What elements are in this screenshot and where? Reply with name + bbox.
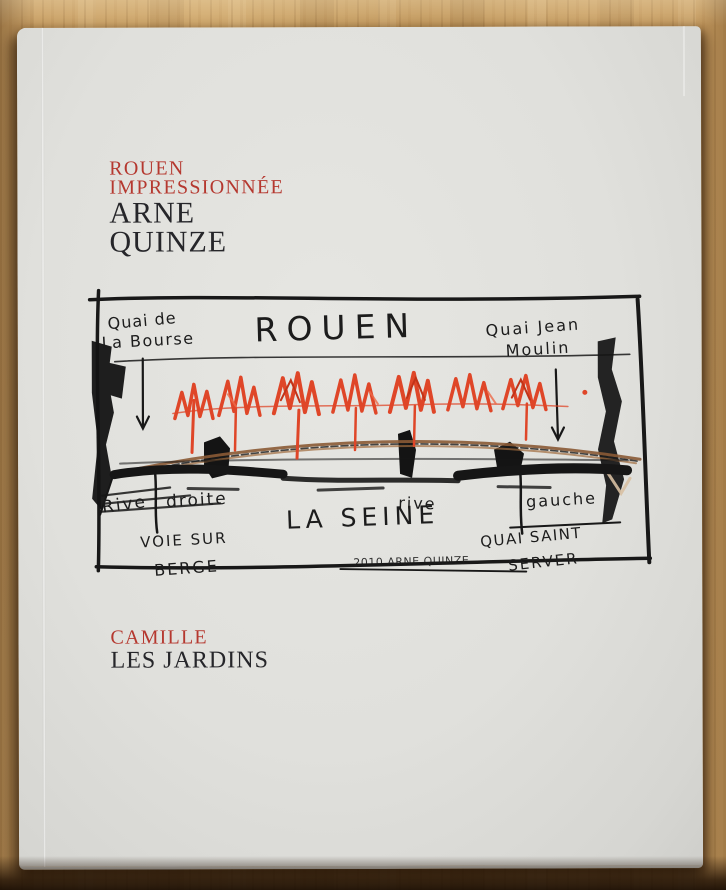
photo-of-book-on-table: ROUEN IMPRESSIONNÉE ARNE QUINZE bbox=[0, 0, 726, 890]
label-quai-saint: QUAI SAINT bbox=[479, 524, 582, 551]
ink-blot-right bbox=[598, 337, 624, 523]
table-shadow bbox=[0, 856, 726, 890]
book-cover: ROUEN IMPRESSIONNÉE ARNE QUINZE bbox=[17, 26, 703, 870]
sketch-title-rouen: ROUEN bbox=[254, 306, 419, 350]
label-rive-droite-a: Rive bbox=[101, 492, 148, 517]
label-rive-gauche-a: rive bbox=[398, 493, 437, 513]
spine-fold-line bbox=[41, 28, 46, 867]
label-berge: BERGE bbox=[154, 556, 220, 580]
corner-fold-line bbox=[683, 26, 685, 96]
label-rive-gauche-b: gauche bbox=[526, 488, 598, 511]
cover-footer-line1: CAMILLE bbox=[110, 627, 268, 648]
seine-sketch-drawing: ROUEN Quai de La Bourse Quai Jean Moulin… bbox=[78, 281, 679, 613]
artist-signature: 2010 ARNE QUINZE bbox=[353, 554, 469, 569]
cover-author-line2: QUINZE bbox=[109, 229, 284, 255]
label-quai-moulin-line1: Quai Jean bbox=[485, 314, 581, 340]
cover-title-block: ROUEN IMPRESSIONNÉE ARNE QUINZE bbox=[109, 159, 284, 255]
down-arrow-left bbox=[137, 359, 149, 429]
down-arrow-right bbox=[552, 369, 564, 439]
label-quai-moulin-line2: Moulin bbox=[505, 338, 571, 361]
cover-footer-line2: LES JARDINS bbox=[111, 648, 269, 673]
cover-footer-block: CAMILLE LES JARDINS bbox=[110, 627, 268, 673]
label-rive-droite-b: droite bbox=[166, 489, 229, 512]
label-quai-bourse-line2: La Bourse bbox=[101, 328, 195, 352]
cover-title-line2: IMPRESSIONNÉE bbox=[109, 178, 284, 197]
label-server: SERVER bbox=[507, 549, 579, 574]
label-voie-sur: VOIE SUR bbox=[140, 529, 228, 552]
cover-author-line1: ARNE bbox=[109, 200, 284, 226]
